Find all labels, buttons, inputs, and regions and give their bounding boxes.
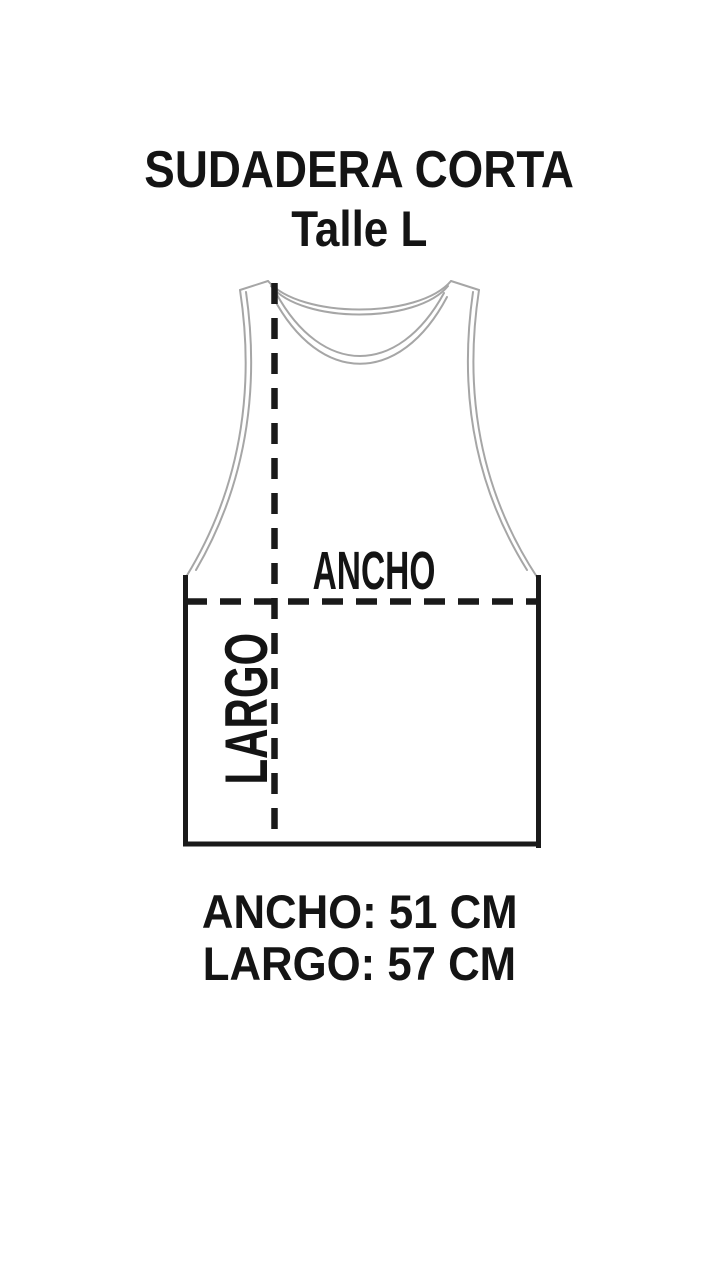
- neckline-scoop-lower: [273, 297, 447, 364]
- collar-band-outer: [268, 281, 451, 310]
- right-strap-top-edge: [451, 281, 479, 290]
- right-armhole-seam: [468, 292, 527, 570]
- length-dimension-label: LARGO: [219, 617, 275, 817]
- neckline-scoop-upper: [276, 293, 444, 356]
- width-dimension-label-text: ANCHO: [313, 547, 436, 595]
- width-dimension-label: ANCHO: [274, 547, 474, 595]
- size-chart-page: SUDADERA CORTA Talle L: [0, 0, 719, 1280]
- length-measurement-text: LARGO: 57 CM: [0, 938, 719, 990]
- left-armhole-seam: [196, 292, 251, 570]
- tank-top-outline: [186, 281, 537, 577]
- right-side-silhouette: [473, 290, 537, 577]
- width-measurement-value: ANCHO: 51 CM: [202, 886, 518, 938]
- measurements-block: ANCHO: 51 CM LARGO: 57 CM: [0, 886, 719, 990]
- length-dimension-label-text: LARGO: [219, 633, 275, 785]
- width-measurement-text: ANCHO: 51 CM: [0, 886, 719, 938]
- left-strap-top-edge: [240, 281, 268, 290]
- tank-top-diagram: [0, 0, 719, 1280]
- length-measurement-value: LARGO: 57 CM: [203, 938, 516, 990]
